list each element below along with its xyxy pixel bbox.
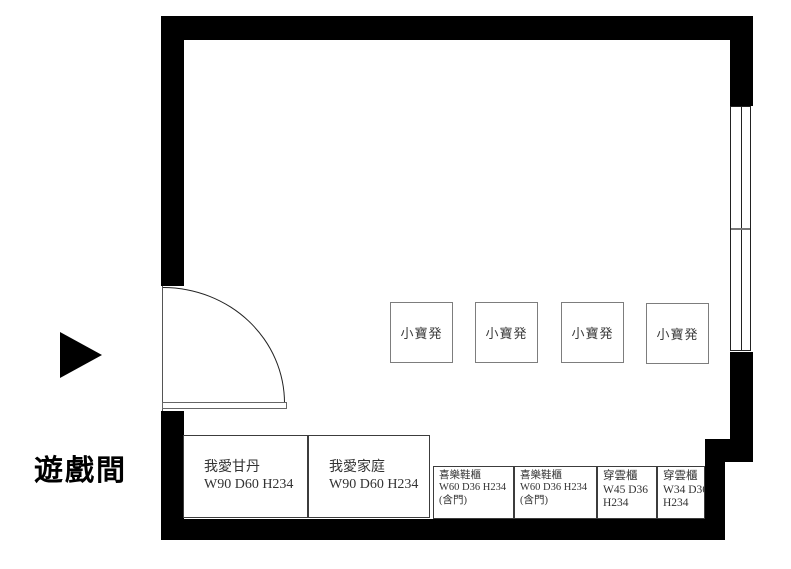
cabinet-name: 穿雲櫃 — [603, 470, 655, 484]
stool-3: 小寶発 — [561, 302, 624, 363]
stool-label: 小寶発 — [485, 323, 527, 342]
cabinet-note: H234 — [603, 497, 655, 511]
door-leaf — [162, 402, 287, 409]
stool-1: 小寶発 — [390, 302, 453, 363]
cabinet-name: 穿雲櫃 — [663, 470, 703, 484]
stool-2: 小寶発 — [475, 302, 538, 363]
cabinet-1: 我愛甘丹 W90 D60 H234 — [183, 435, 308, 518]
cabinet-6: 穿雲櫃 W34 D36 H234 — [657, 466, 705, 519]
room-name-label: 遊戲間 — [34, 447, 127, 489]
wall-right-upper — [730, 16, 753, 106]
wall-left-upper — [161, 16, 184, 286]
cabinet-name: 我愛甘丹 — [204, 460, 303, 477]
cabinet-3: 喜樂鞋櫃 W60 D36 H234 (含門) — [433, 466, 514, 519]
cabinet-size: W60 D36 H234 — [520, 482, 595, 494]
wall-bottom — [161, 519, 725, 540]
cabinet-name: 我愛家庭 — [329, 460, 425, 477]
window-mullion-horizontal — [731, 228, 750, 230]
cabinet-note: (含門) — [439, 495, 512, 507]
wall-right-lower — [705, 462, 725, 540]
cabinet-5: 穿雲櫃 W45 D36 H234 — [597, 466, 657, 519]
cabinet-4: 喜樂鞋櫃 W60 D36 H234 (含門) — [514, 466, 597, 519]
window — [730, 106, 751, 351]
door-swing-arc — [163, 287, 285, 403]
cabinet-size: W90 D60 H234 — [329, 477, 425, 494]
cabinet-size: W34 D36 — [663, 484, 703, 498]
cabinet-note: (含門) — [520, 495, 595, 507]
stool-label: 小寶発 — [571, 323, 613, 342]
cabinet-size: W60 D36 H234 — [439, 482, 512, 494]
stool-4: 小寶発 — [646, 303, 709, 364]
stool-label: 小寶発 — [656, 324, 698, 343]
floor-plan: 小寶発 小寶発 小寶発 小寶発 我愛甘丹 W90 D60 H234 我愛家庭 W… — [0, 0, 791, 569]
cabinet-note: H234 — [663, 497, 703, 511]
stool-label: 小寶発 — [400, 323, 442, 342]
direction-arrow-icon — [60, 332, 102, 378]
wall-right-step — [705, 439, 753, 462]
cabinet-name: 喜樂鞋櫃 — [439, 470, 512, 482]
wall-top — [161, 16, 753, 40]
cabinet-name: 喜樂鞋櫃 — [520, 470, 595, 482]
cabinet-size: W45 D36 — [603, 484, 655, 498]
cabinet-size: W90 D60 H234 — [204, 477, 303, 494]
cabinet-2: 我愛家庭 W90 D60 H234 — [308, 435, 430, 518]
